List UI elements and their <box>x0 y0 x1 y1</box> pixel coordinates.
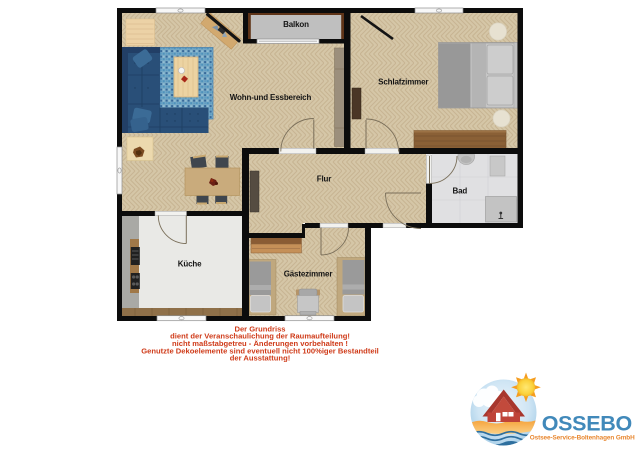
svg-text:Schlafzimmer: Schlafzimmer <box>378 78 428 87</box>
svg-text:Flur: Flur <box>317 175 332 184</box>
svg-text:Gästezimmer: Gästezimmer <box>284 269 333 278</box>
svg-text:Balkon: Balkon <box>283 20 309 29</box>
svg-text:OSSEBO: OSSEBO <box>542 412 632 436</box>
svg-text:Ostsee-Service-Boltenhagen Gmb: Ostsee-Service-Boltenhagen GmbH <box>530 435 635 442</box>
svg-text:Bad: Bad <box>452 187 467 196</box>
svg-text:Wohn-und Essbereich: Wohn-und Essbereich <box>230 93 312 102</box>
svg-text:Küche: Küche <box>178 260 202 269</box>
svg-text:der Ausstattung!: der Ausstattung! <box>230 354 290 363</box>
